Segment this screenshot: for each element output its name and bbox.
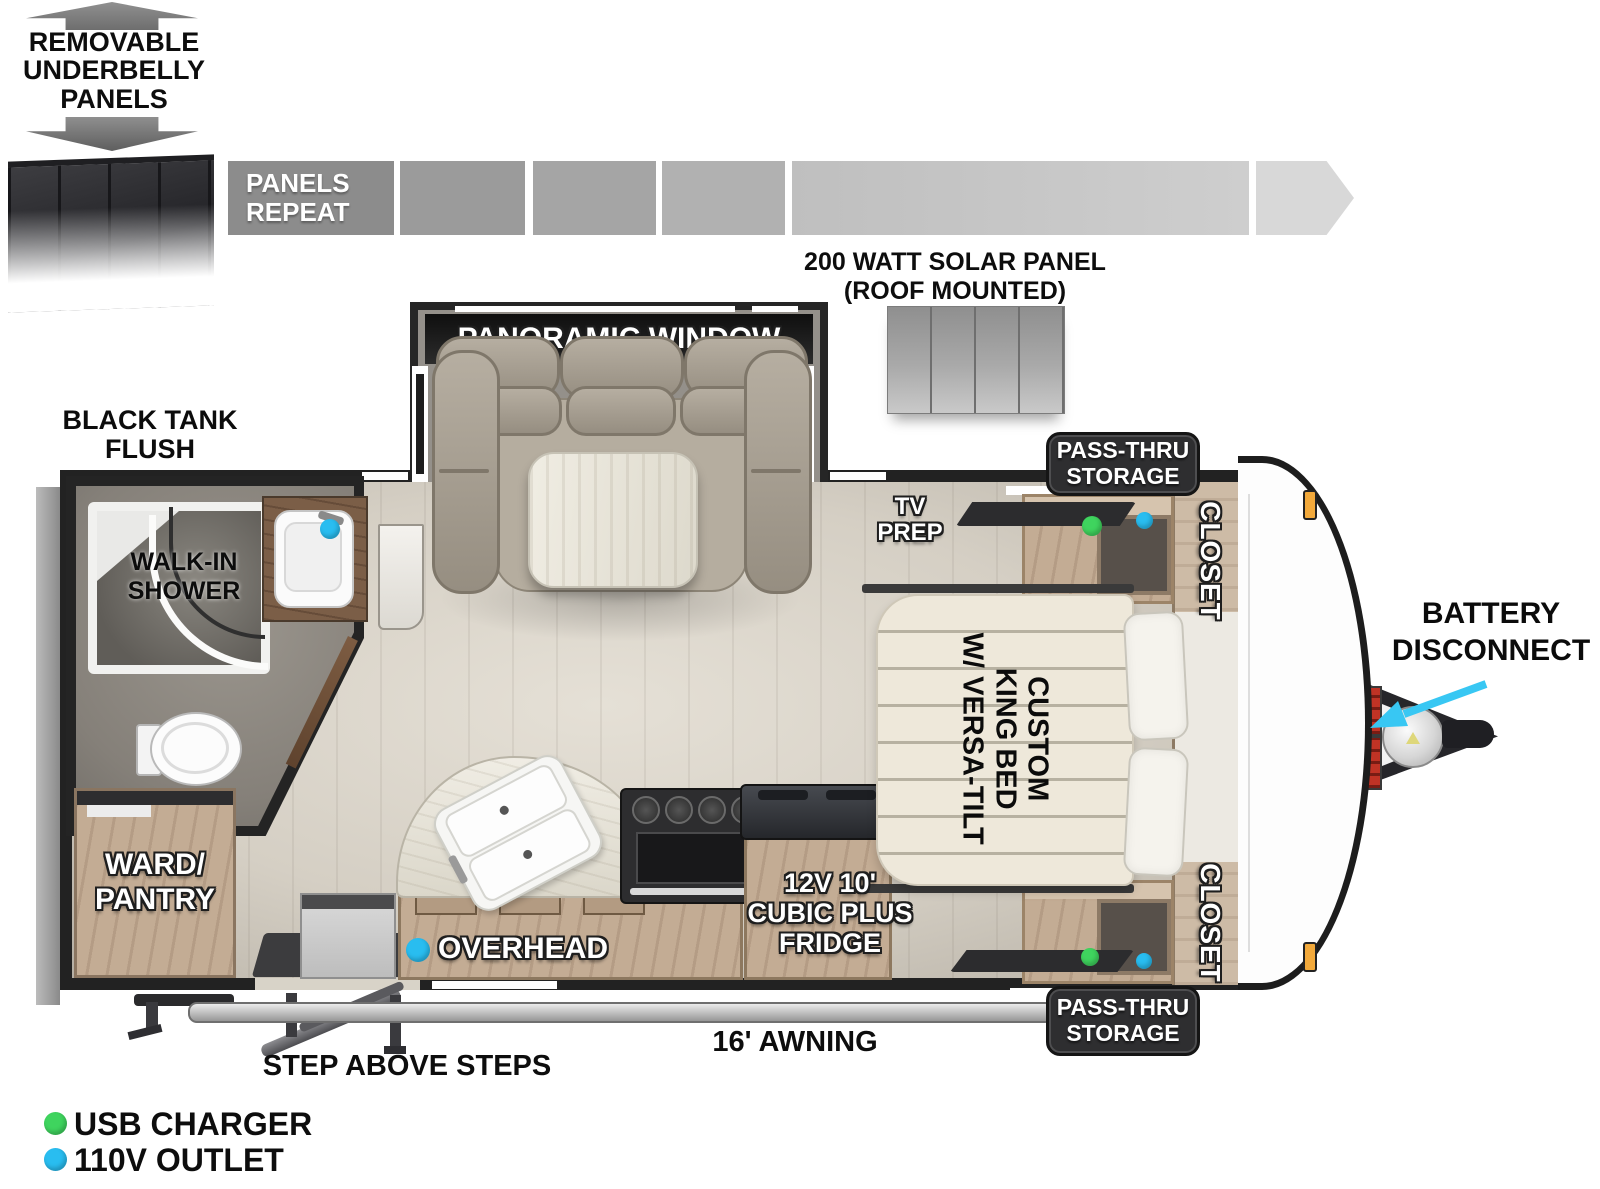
window-top-2 — [830, 472, 886, 480]
fridge-label-line: FRIDGE — [726, 928, 934, 958]
tv-prep-label: TV PREP — [872, 494, 948, 547]
sofa-left-arm — [432, 350, 500, 594]
fridge-top — [740, 784, 896, 840]
roof-panel — [400, 161, 525, 235]
legend-usb-label: USB CHARGER — [74, 1106, 312, 1143]
slide-out-sill — [455, 306, 735, 312]
pass-thru-line: STORAGE — [1066, 464, 1179, 490]
toilet — [150, 712, 242, 786]
underbelly-panel-photo — [8, 154, 214, 312]
bathroom-sink — [274, 510, 354, 608]
pass-thru-line: PASS-THRU — [1057, 438, 1189, 464]
underbelly-callout: REMOVABLE UNDERBELLY PANELS — [18, 28, 210, 113]
outlet-110v-dot — [406, 938, 430, 962]
overhead-label: OVERHEAD — [438, 932, 608, 966]
legend-110v-dot — [44, 1148, 67, 1171]
tv-prep-line: TV — [872, 494, 948, 520]
underbelly-line: REMOVABLE — [18, 28, 210, 56]
rear-bumper — [36, 487, 60, 1005]
outlet-110v-dot — [320, 519, 340, 539]
marker-light-icon — [1303, 490, 1317, 520]
sofa-lumbar-cushion — [566, 386, 676, 436]
flush-label-line: FLUSH — [40, 435, 260, 464]
window-bottom-1 — [432, 981, 557, 989]
ward-pantry-label: WARD/ PANTRY — [74, 848, 236, 917]
outlet-110v-dot — [1136, 953, 1152, 969]
hall-shelf — [378, 524, 424, 630]
pass-thru-storage-badge-bottom: PASS-THRU STORAGE — [1046, 986, 1200, 1056]
ward-label-line: PANTRY — [74, 883, 236, 918]
tv-prep-line: PREP — [872, 520, 948, 546]
slide-window-left — [412, 366, 428, 482]
solar-label-line: 200 WATT SOLAR PANEL — [795, 248, 1115, 277]
outlet-110v-dot — [1136, 512, 1153, 529]
shower-label-line: SHOWER — [82, 577, 286, 606]
fridge-label: 12V 10' CUBIC PLUS FRIDGE — [726, 868, 934, 959]
pass-thru-line: PASS-THRU — [1057, 995, 1189, 1021]
battery-disconnect-label: BATTERY DISCONNECT — [1382, 596, 1600, 669]
slide-out-sill — [752, 306, 798, 312]
shower-label-line: WALK-IN — [82, 548, 286, 577]
fridge-label-line: CUBIC PLUS — [726, 898, 934, 928]
awning-bar — [188, 1002, 1054, 1023]
legend-110v-label: 110V OUTLET — [74, 1142, 284, 1179]
closet-label-bottom: CLOSET — [1186, 848, 1234, 998]
ward-label-line: WARD/ — [74, 848, 236, 883]
marker-light-icon — [1303, 942, 1317, 972]
panels-repeat-label: PANELS — [246, 169, 394, 198]
battery-pointer-arrow-icon — [1352, 676, 1498, 740]
roof-panel — [533, 161, 656, 235]
pass-thru-storage-badge-top: PASS-THRU STORAGE — [1046, 432, 1200, 496]
battery-label-line: BATTERY — [1382, 596, 1600, 633]
bed-frame-bar — [862, 584, 1134, 593]
usb-charger-dot — [1081, 948, 1099, 966]
steps-label: STEP ABOVE STEPS — [252, 1050, 562, 1083]
roof-panel — [662, 161, 785, 235]
panels-repeat-box: PANELS REPEAT — [228, 161, 394, 235]
usb-charger-dot — [1082, 516, 1102, 536]
awning-label: 16' AWNING — [688, 1026, 902, 1059]
floorplan-canvas: REMOVABLE UNDERBELLY PANELS PANELS REPEA… — [0, 0, 1600, 1189]
underbelly-line: UNDERBELLY — [18, 56, 210, 84]
king-bed-label: CUSTOM KING BED W/ VERSA-TILT — [875, 598, 1135, 880]
flush-label-line: BLACK TANK — [40, 406, 260, 435]
bed-label-line: CUSTOM — [1021, 609, 1053, 869]
interior-step-box — [300, 893, 396, 979]
nightstand-glass — [1097, 515, 1171, 595]
solar-panel-graphic — [887, 306, 1065, 414]
roof-panel-long — [792, 161, 1249, 235]
closet-label-top: CLOSET — [1186, 486, 1234, 636]
bedroom-mat-bottom — [950, 950, 1134, 972]
black-tank-flush-label: BLACK TANK FLUSH — [40, 406, 260, 464]
arrow-up-icon — [26, 2, 198, 30]
dinette-table — [528, 452, 698, 588]
solar-panel-callout: 200 WATT SOLAR PANEL (ROOF MOUNTED) — [795, 248, 1115, 305]
underbelly-line: PANELS — [18, 85, 210, 113]
bedroom-mat-top — [956, 502, 1136, 526]
battery-label-line: DISCONNECT — [1382, 633, 1600, 670]
bed-label-line: W/ VERSA-TILT — [956, 609, 988, 869]
solar-label-line: (ROOF MOUNTED) — [795, 277, 1115, 306]
legend-usb-dot — [44, 1112, 67, 1135]
sofa-right-arm — [744, 350, 812, 594]
rear-jack-foot — [128, 1024, 163, 1040]
pass-thru-line: STORAGE — [1066, 1021, 1179, 1047]
roof-panel-arrow — [1256, 161, 1354, 235]
arrow-down-icon — [26, 117, 198, 151]
walk-in-shower-label: WALK-IN SHOWER — [82, 548, 286, 606]
window-top-1 — [362, 472, 408, 480]
bed-label-line: KING BED — [989, 609, 1021, 869]
panels-repeat-label: REPEAT — [246, 198, 394, 227]
